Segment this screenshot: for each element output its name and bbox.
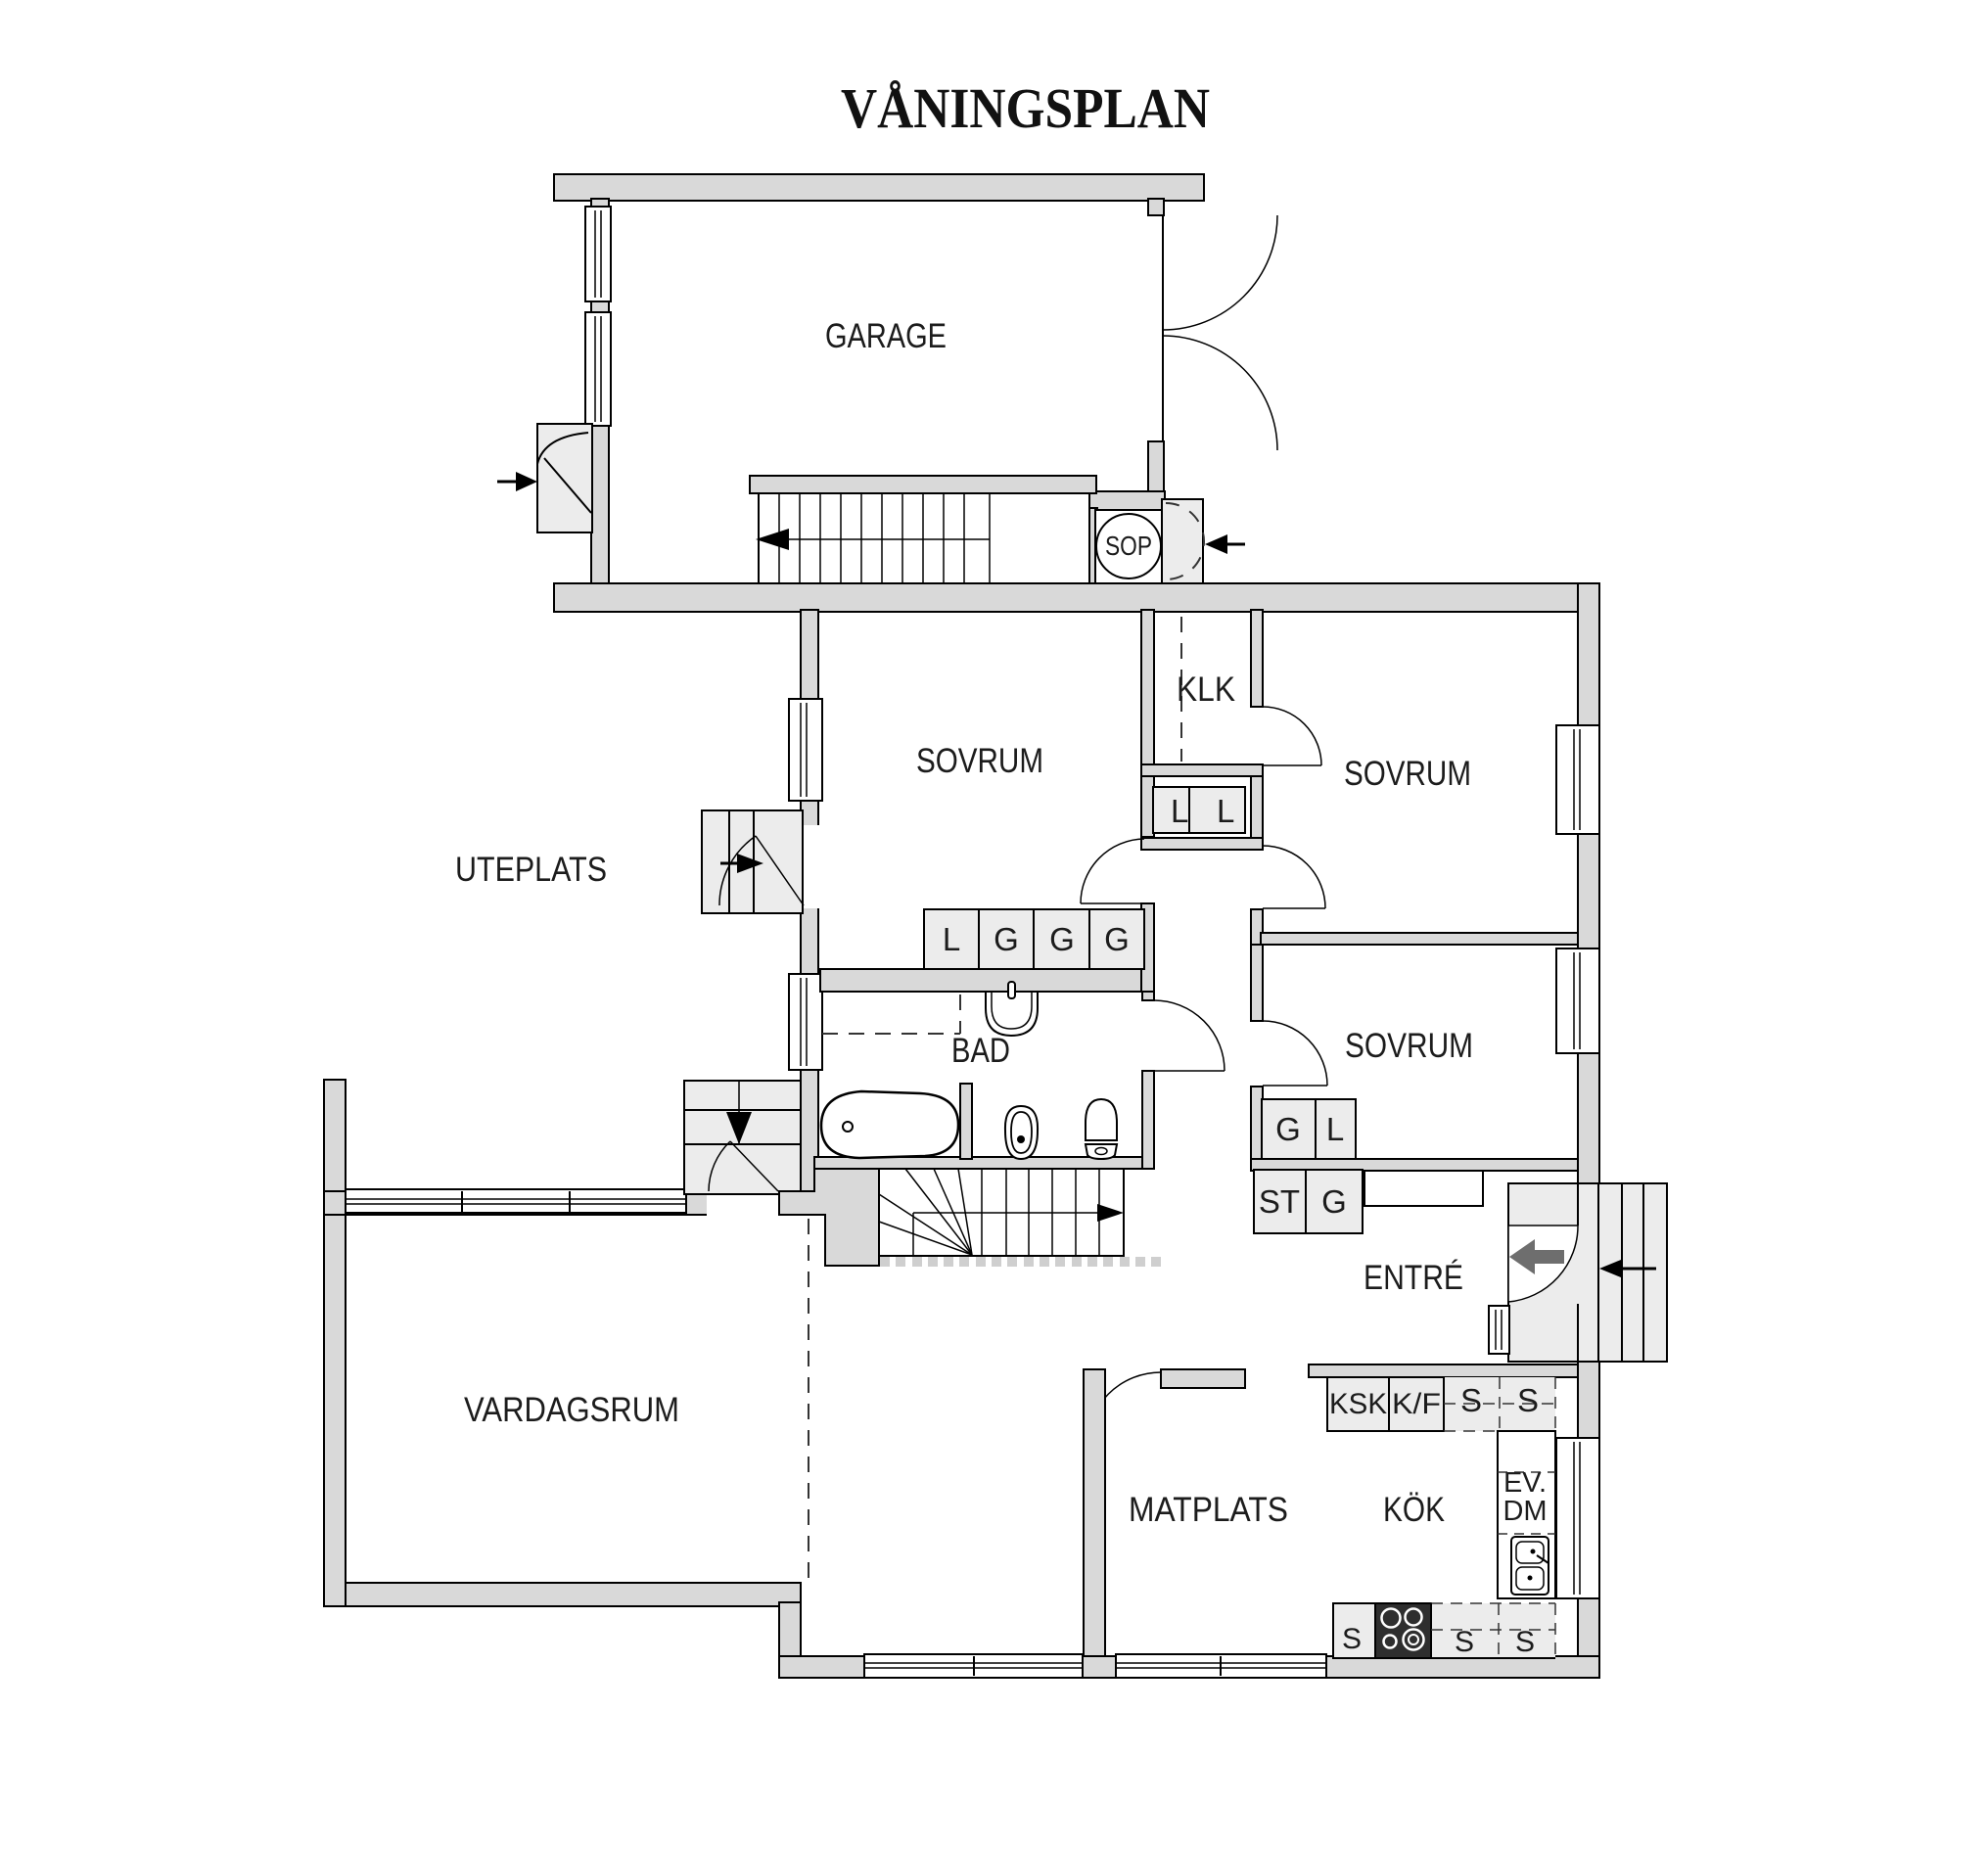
svg-text:G: G xyxy=(1104,921,1130,957)
svg-text:KÖK: KÖK xyxy=(1383,1491,1445,1529)
svg-text:K/F: K/F xyxy=(1392,1388,1441,1420)
svg-text:EV.: EV. xyxy=(1503,1467,1547,1499)
svg-text:SOVRUM: SOVRUM xyxy=(1345,1027,1473,1065)
svg-text:L: L xyxy=(1326,1111,1344,1147)
svg-text:VÅNINGSPLAN: VÅNINGSPLAN xyxy=(841,76,1210,140)
svg-text:G: G xyxy=(994,921,1019,957)
svg-text:S: S xyxy=(1517,1382,1539,1418)
svg-text:L: L xyxy=(1217,793,1234,829)
svg-text:SOP: SOP xyxy=(1105,531,1152,561)
svg-text:VARDAGSRUM: VARDAGSRUM xyxy=(464,1391,679,1429)
svg-text:S: S xyxy=(1342,1623,1362,1655)
svg-text:SOVRUM: SOVRUM xyxy=(916,742,1043,780)
svg-text:S: S xyxy=(1460,1382,1482,1418)
svg-text:KSK: KSK xyxy=(1329,1388,1387,1420)
svg-text:ENTRÉ: ENTRÉ xyxy=(1364,1259,1463,1297)
svg-text:BAD: BAD xyxy=(951,1032,1010,1070)
svg-text:G: G xyxy=(1049,921,1075,957)
svg-text:ST: ST xyxy=(1259,1183,1300,1220)
svg-text:L: L xyxy=(943,921,960,957)
svg-text:SOVRUM: SOVRUM xyxy=(1344,755,1471,793)
svg-text:L: L xyxy=(1171,793,1188,829)
svg-text:UTEPLATS: UTEPLATS xyxy=(455,851,607,889)
svg-text:S: S xyxy=(1515,1626,1535,1658)
svg-text:G: G xyxy=(1321,1183,1347,1220)
svg-text:MATPLATS: MATPLATS xyxy=(1129,1491,1288,1529)
svg-text:GARAGE: GARAGE xyxy=(825,317,947,355)
svg-text:DM: DM xyxy=(1503,1496,1547,1527)
svg-text:G: G xyxy=(1275,1111,1301,1147)
svg-text:S: S xyxy=(1455,1626,1474,1658)
svg-text:KLK: KLK xyxy=(1177,671,1235,709)
